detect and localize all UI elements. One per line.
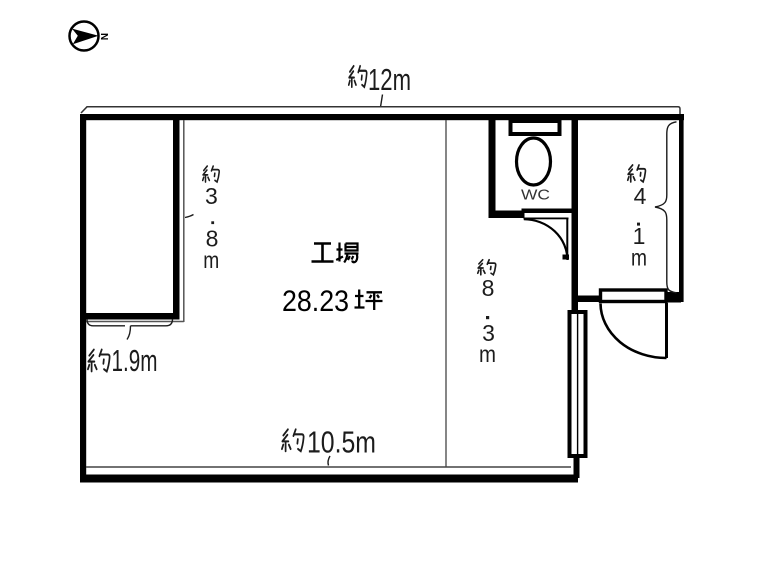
svg-text:m: m [203, 247, 219, 273]
svg-text:m: m [631, 244, 647, 270]
svg-text:3: 3 [205, 183, 218, 209]
svg-text:WC: WC [521, 188, 550, 204]
svg-text:8: 8 [482, 275, 495, 301]
svg-text:m: m [479, 341, 496, 367]
svg-text:4: 4 [634, 183, 647, 209]
svg-text:10.5m: 10.5m [307, 425, 376, 460]
svg-text:1.9m: 1.9m [112, 343, 158, 378]
svg-text:28.23: 28.23 [282, 285, 349, 318]
svg-text:N: N [98, 33, 109, 40]
svg-text:12m: 12m [368, 62, 411, 97]
